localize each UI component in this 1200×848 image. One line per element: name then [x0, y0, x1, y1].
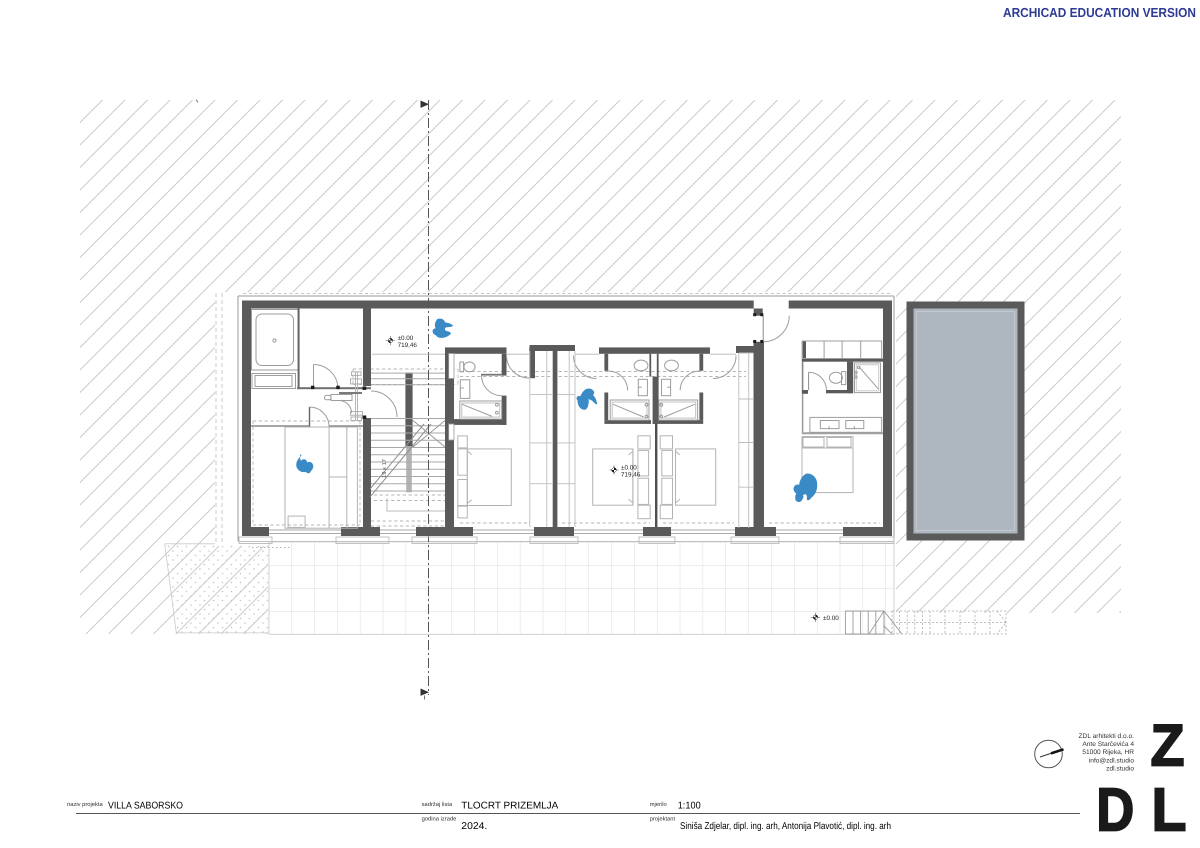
- svg-text:info@zdl.studio: info@zdl.studio: [1089, 757, 1135, 764]
- svg-text:TLOCRT PRIZEMLJA: TLOCRT PRIZEMLJA: [461, 801, 558, 812]
- svg-text:ARCHICAD EDUCATION VERSION: ARCHICAD EDUCATION VERSION: [1003, 5, 1196, 20]
- svg-text:2024.: 2024.: [461, 821, 487, 832]
- svg-text:projektant: projektant: [650, 816, 676, 823]
- svg-text:L: L: [1152, 776, 1187, 844]
- svg-text:VILLA SABORSKO: VILLA SABORSKO: [108, 801, 183, 812]
- svg-text:Ante Starčevića 4: Ante Starčevića 4: [1082, 741, 1134, 748]
- svg-text:mjerilo: mjerilo: [650, 801, 667, 808]
- svg-text:Z: Z: [1151, 712, 1185, 778]
- svg-text:719,46: 719,46: [621, 472, 641, 479]
- svg-text:D: D: [1096, 776, 1134, 844]
- svg-text:19 x 17: 19 x 17: [381, 459, 388, 478]
- svg-text:ZDL arhitekti d.o.o.: ZDL arhitekti d.o.o.: [1079, 733, 1135, 740]
- svg-text:sadržaj lista: sadržaj lista: [422, 801, 453, 808]
- svg-text:719,46: 719,46: [398, 342, 418, 349]
- svg-text:±0.00: ±0.00: [823, 615, 839, 622]
- svg-text:±0.00: ±0.00: [621, 465, 637, 472]
- svg-text:godina izrade: godina izrade: [422, 816, 457, 823]
- svg-text:naziv projekta: naziv projekta: [67, 801, 104, 808]
- svg-text:51000 Rijeka, HR: 51000 Rijeka, HR: [1082, 749, 1134, 756]
- svg-text:Siniša Zdjelar, dipl. ing. arh: Siniša Zdjelar, dipl. ing. arh, Antonija…: [680, 821, 891, 832]
- svg-text:±0.00: ±0.00: [398, 335, 414, 342]
- svg-text:1:100: 1:100: [678, 801, 702, 812]
- svg-text:zdl.studio: zdl.studio: [1106, 765, 1134, 772]
